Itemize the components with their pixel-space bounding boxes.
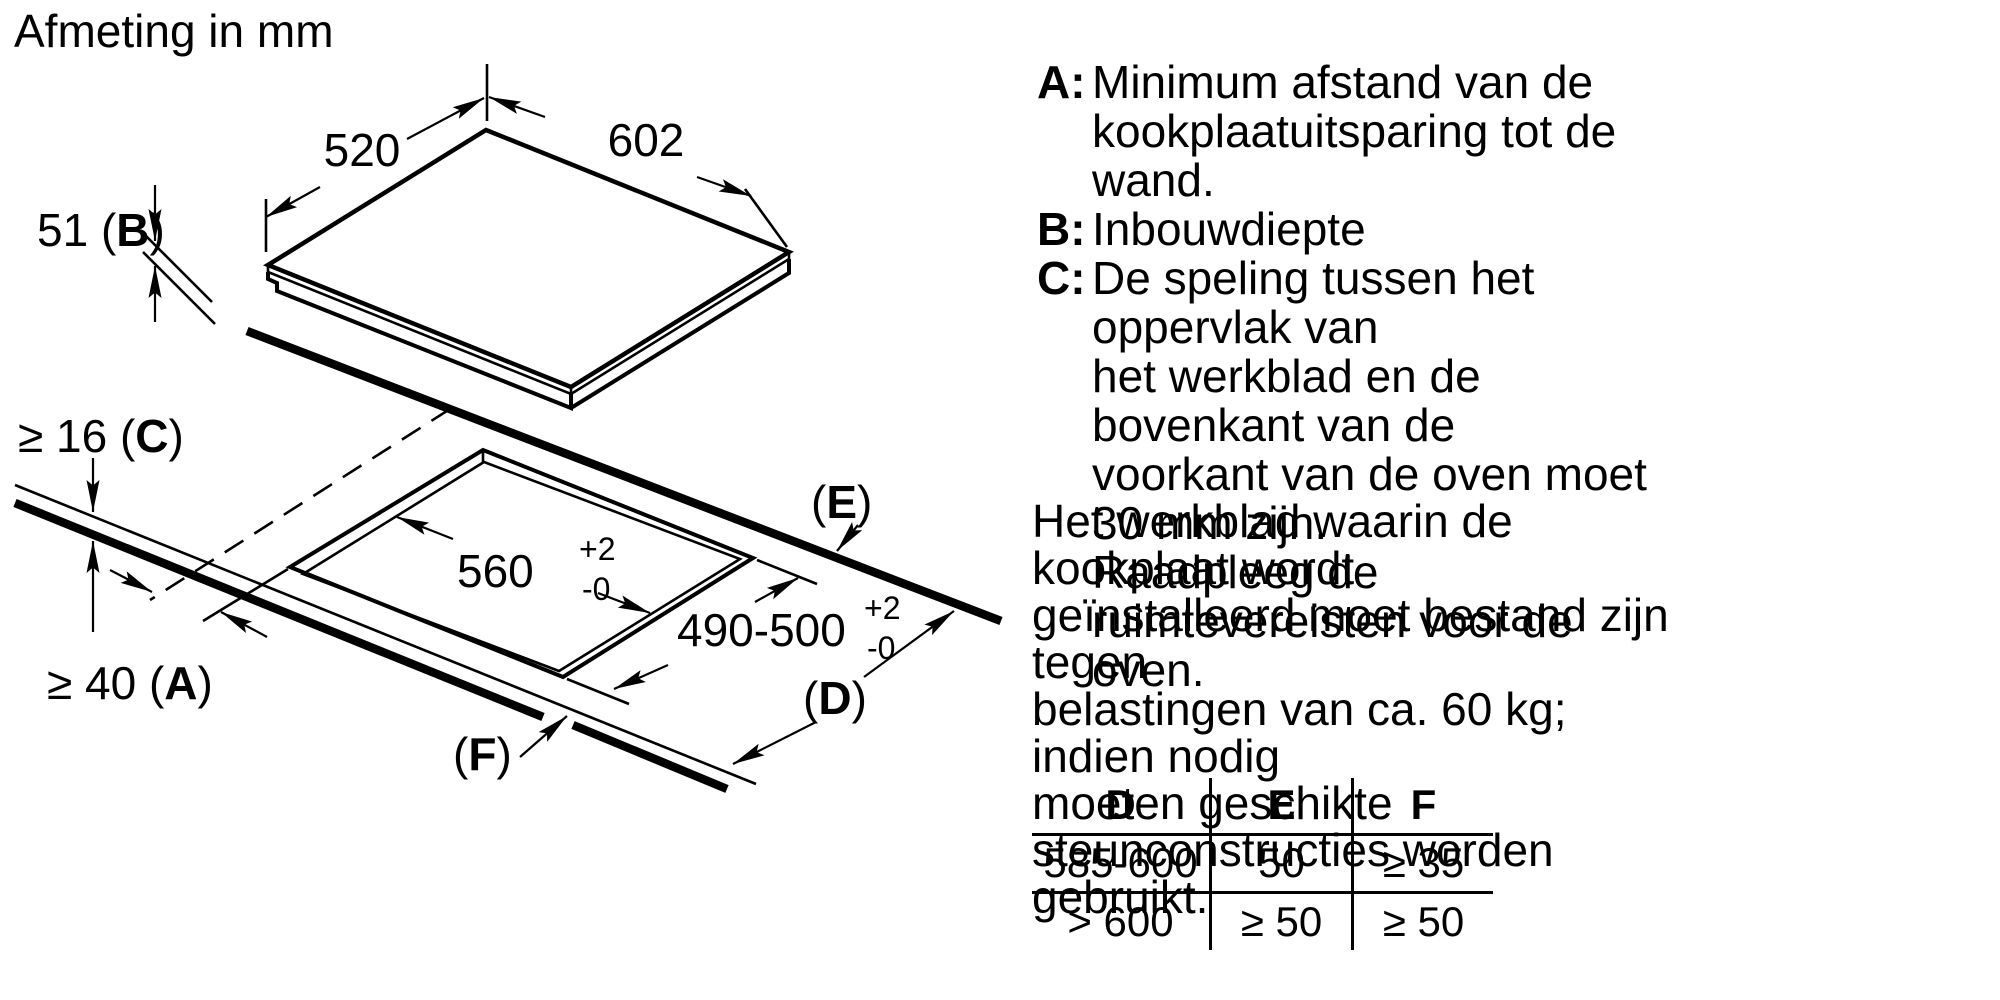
- dim-label-d: (D): [803, 672, 867, 724]
- dim-label-602: 602: [608, 114, 685, 166]
- dim-label-560: 560: [457, 545, 534, 597]
- installation-diagram: 520 602 51 (B) ≥ 16 (C) ≥ 40 (A) 560 +2 …: [0, 0, 1030, 1000]
- legend-text-b: Inbouwdiepte: [1092, 205, 1657, 254]
- legend-text-a: Minimum afstand van de kookplaatuitspari…: [1092, 58, 1657, 205]
- dim-label-520: 520: [324, 124, 401, 176]
- legend-letter-b: B:: [1037, 205, 1092, 254]
- spec-cell-d2: > 600: [1032, 892, 1211, 950]
- legend-letter-a: A:: [1037, 58, 1092, 205]
- dim-label-51b: 51 (B): [37, 204, 165, 256]
- table-row: 585-600 50 ≥ 35: [1032, 834, 1493, 892]
- spec-table-header-f: F: [1353, 778, 1494, 834]
- spec-cell-e2: ≥ 50: [1211, 892, 1353, 950]
- spec-table-header-e: E: [1211, 778, 1353, 834]
- dim-label-490-500: 490-500: [677, 604, 846, 656]
- dim-label-16c: ≥ 16 (C): [18, 410, 184, 462]
- spec-cell-d1: 585-600: [1032, 834, 1211, 892]
- legend-item-a: A: Minimum afstand van de kookplaatuitsp…: [1037, 58, 1657, 205]
- legend-item-b: B: Inbouwdiepte: [1037, 205, 1657, 254]
- spec-table-header-row: D E F: [1032, 778, 1493, 834]
- dim-label-490-500-sup: +2: [864, 590, 900, 626]
- spec-cell-f1: ≥ 35: [1353, 834, 1494, 892]
- table-row: > 600 ≥ 50 ≥ 50: [1032, 892, 1493, 950]
- spec-table-header-d: D: [1032, 778, 1211, 834]
- dim-label-490-500-sub: -0: [867, 630, 895, 666]
- spec-cell-e1: 50: [1211, 834, 1353, 892]
- dim-label-560-sub: -0: [582, 571, 610, 607]
- spec-table: D E F 585-600 50 ≥ 35 > 600 ≥ 50 ≥ 50: [1032, 778, 1493, 950]
- manual-page: Afmeting in mm: [0, 0, 2000, 1000]
- dim-label-40a: ≥ 40 (A): [47, 657, 213, 709]
- spec-cell-f2: ≥ 50: [1353, 892, 1494, 950]
- dim-label-e: (E): [811, 476, 872, 528]
- dim-label-560-sup: +2: [579, 531, 615, 567]
- dim-label-f: (F): [453, 728, 512, 780]
